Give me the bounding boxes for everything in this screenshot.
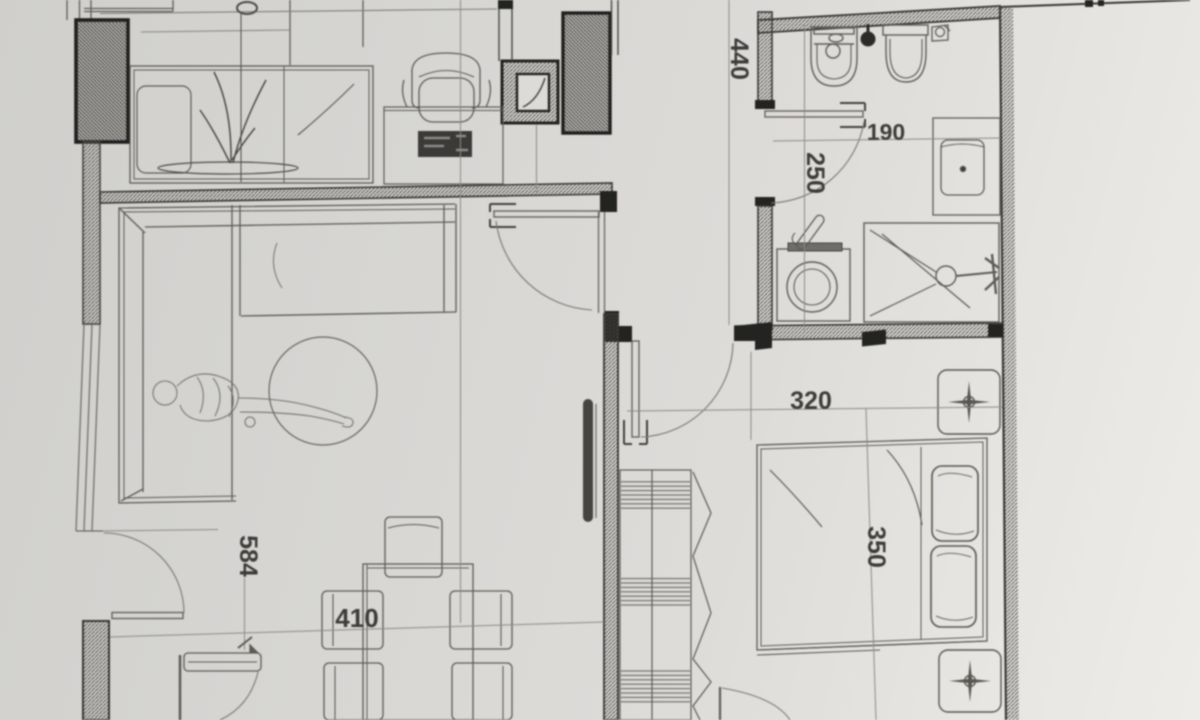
svg-text:440: 440 (725, 38, 753, 80)
svg-text:250: 250 (801, 152, 829, 194)
svg-text:320: 320 (790, 387, 832, 415)
svg-text:584: 584 (234, 535, 262, 577)
svg-text:410: 410 (335, 603, 378, 633)
svg-text:190: 190 (867, 119, 905, 145)
svg-text:350: 350 (862, 526, 890, 568)
